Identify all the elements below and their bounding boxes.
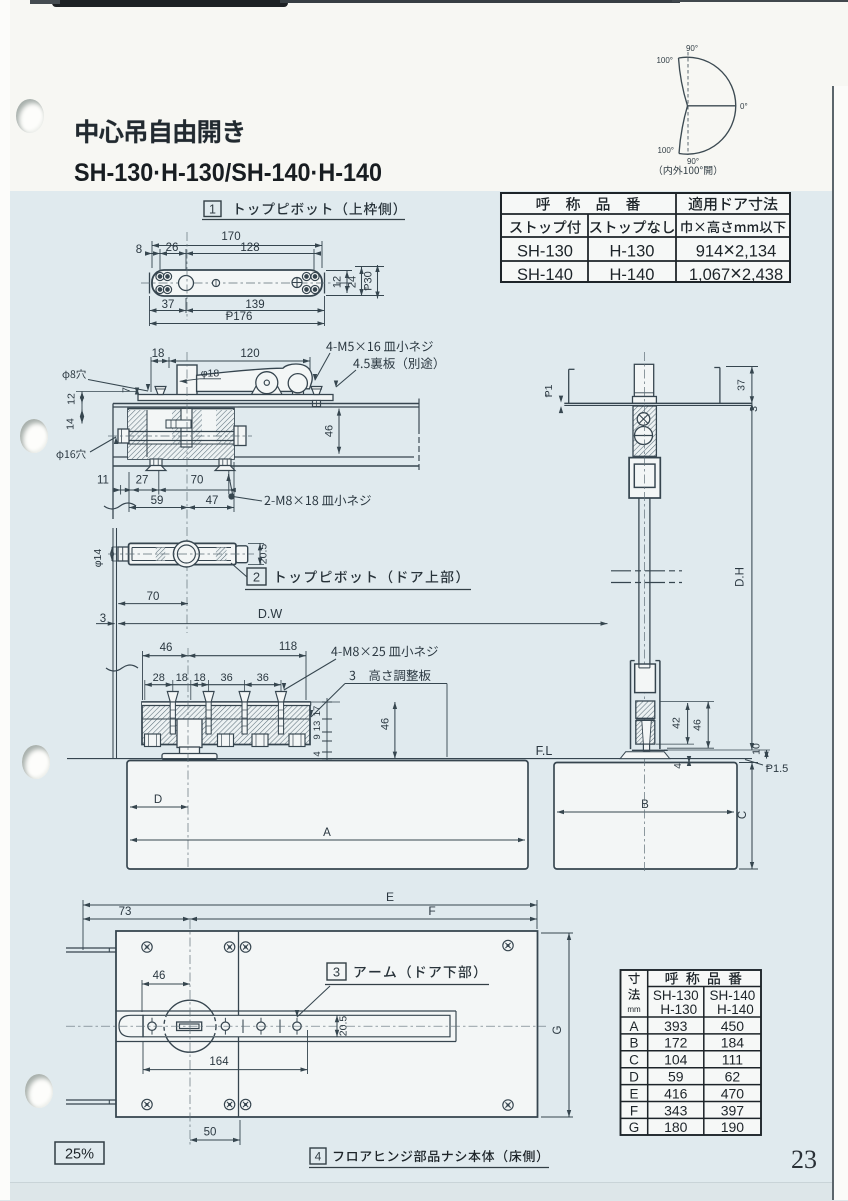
svg-text:D: D	[154, 794, 162, 806]
svg-text:23: 23	[791, 1145, 817, 1174]
svg-text:73: 73	[119, 906, 132, 918]
svg-text:Ᵽ176: Ᵽ176	[226, 311, 253, 323]
svg-text:46: 46	[692, 719, 704, 731]
svg-text:393: 393	[664, 1018, 688, 1034]
svg-text:Ᵽ30: Ᵽ30	[363, 271, 375, 291]
svg-text:470: 470	[721, 1085, 745, 1101]
svg-text:3: 3	[333, 965, 340, 980]
svg-text:128: 128	[240, 242, 259, 254]
svg-text:111: 111	[722, 1052, 743, 1068]
svg-text:100°: 100°	[657, 146, 674, 155]
svg-text:9: 9	[312, 734, 323, 739]
svg-text:46: 46	[153, 970, 166, 982]
svg-text:172: 172	[664, 1035, 688, 1051]
svg-text:42: 42	[671, 717, 683, 729]
svg-text:46: 46	[160, 642, 173, 654]
svg-text:139: 139	[245, 299, 264, 311]
svg-text:φ14: φ14	[92, 549, 104, 568]
svg-text:46: 46	[324, 425, 336, 437]
svg-text:37: 37	[162, 299, 175, 311]
svg-text:90°: 90°	[686, 44, 698, 53]
svg-text:12: 12	[332, 276, 344, 288]
svg-text:H-140: H-140	[717, 1002, 754, 1017]
svg-text:Ᵽ1: Ᵽ1	[543, 384, 555, 397]
svg-text:A: A	[629, 1019, 638, 1034]
svg-text:120: 120	[240, 348, 259, 360]
svg-text:C: C	[737, 811, 749, 819]
svg-text:90°: 90°	[687, 157, 699, 166]
svg-text:20.5: 20.5	[338, 1016, 350, 1037]
svg-text:118: 118	[279, 641, 297, 653]
svg-text:104: 104	[664, 1052, 688, 1068]
svg-text:D: D	[629, 1070, 639, 1085]
svg-text:37: 37	[736, 379, 748, 391]
svg-text:1,067×2,438: 1,067×2,438	[689, 263, 783, 285]
svg-text:A: A	[323, 827, 331, 839]
svg-text:H-130: H-130	[610, 243, 655, 261]
svg-text:4: 4	[315, 1150, 322, 1164]
svg-text:70: 70	[191, 475, 204, 487]
svg-text:mm: mm	[627, 1005, 641, 1014]
svg-text:11: 11	[97, 475, 109, 487]
svg-text:62: 62	[725, 1069, 741, 1085]
svg-text:180: 180	[664, 1119, 688, 1135]
svg-text:E: E	[386, 890, 394, 904]
svg-text:24: 24	[347, 276, 359, 288]
svg-text:F: F	[630, 1103, 638, 1118]
svg-text:914×2,134: 914×2,134	[696, 240, 777, 262]
svg-text:H-140: H-140	[610, 266, 655, 284]
svg-text:13: 13	[312, 721, 323, 732]
svg-text:26: 26	[166, 242, 179, 254]
svg-text:4: 4	[312, 751, 323, 756]
svg-text:450: 450	[721, 1018, 745, 1034]
svg-text:50: 50	[204, 1127, 217, 1139]
svg-text:12: 12	[66, 393, 78, 405]
svg-text:25%: 25%	[65, 1147, 94, 1163]
svg-text:20.5: 20.5	[258, 544, 270, 565]
svg-text:C: C	[629, 1053, 639, 1068]
svg-text:36: 36	[220, 672, 232, 684]
svg-text:D.H: D.H	[735, 567, 747, 587]
svg-text:H-130: H-130	[660, 1002, 697, 1017]
svg-text:190: 190	[721, 1119, 745, 1135]
svg-text:B: B	[629, 1036, 638, 1051]
svg-text:SH-140: SH-140	[517, 266, 573, 284]
svg-text:1: 1	[209, 203, 216, 217]
svg-text:3: 3	[748, 406, 760, 412]
svg-text:416: 416	[664, 1085, 688, 1101]
svg-text:Ᵽ1.5: Ᵽ1.5	[766, 763, 789, 775]
svg-text:184: 184	[721, 1035, 745, 1051]
svg-text:4: 4	[673, 763, 684, 769]
svg-text:18: 18	[152, 348, 165, 360]
svg-text:φ18: φ18	[201, 368, 220, 380]
svg-text:0°: 0°	[740, 102, 748, 111]
svg-text:B: B	[641, 799, 649, 811]
svg-text:SH-140: SH-140	[710, 988, 756, 1003]
svg-text:70: 70	[147, 591, 160, 603]
svg-text:59: 59	[668, 1069, 684, 1085]
svg-text:27: 27	[136, 475, 149, 487]
svg-text:F: F	[428, 904, 435, 918]
svg-text:100°: 100°	[656, 56, 673, 65]
svg-text:397: 397	[721, 1102, 745, 1118]
svg-text:14: 14	[65, 418, 77, 430]
svg-text:2: 2	[253, 570, 260, 585]
svg-text:G: G	[552, 1025, 564, 1034]
svg-text:SH-130: SH-130	[653, 988, 699, 1003]
svg-text:170: 170	[221, 231, 240, 243]
svg-text:28: 28	[153, 672, 165, 684]
svg-text:F.L: F.L	[536, 744, 553, 758]
svg-text:SH-130: SH-130	[517, 243, 573, 261]
svg-text:47: 47	[206, 495, 219, 507]
svg-text:D.W: D.W	[258, 607, 283, 621]
svg-text:36: 36	[257, 672, 269, 684]
svg-text:164: 164	[209, 1056, 229, 1068]
svg-text:G: G	[629, 1120, 640, 1135]
svg-text:8: 8	[136, 244, 142, 256]
svg-text:18: 18	[194, 672, 206, 684]
svg-text:343: 343	[664, 1102, 688, 1118]
svg-text:E: E	[629, 1086, 638, 1101]
svg-text:10: 10	[751, 743, 763, 755]
svg-text:SH-130·H-130/SH-140·H-140: SH-130·H-130/SH-140·H-140	[74, 159, 382, 187]
svg-text:18: 18	[176, 672, 188, 684]
svg-text:59: 59	[151, 495, 164, 507]
svg-text:17: 17	[312, 706, 323, 717]
svg-text:46: 46	[380, 718, 392, 730]
